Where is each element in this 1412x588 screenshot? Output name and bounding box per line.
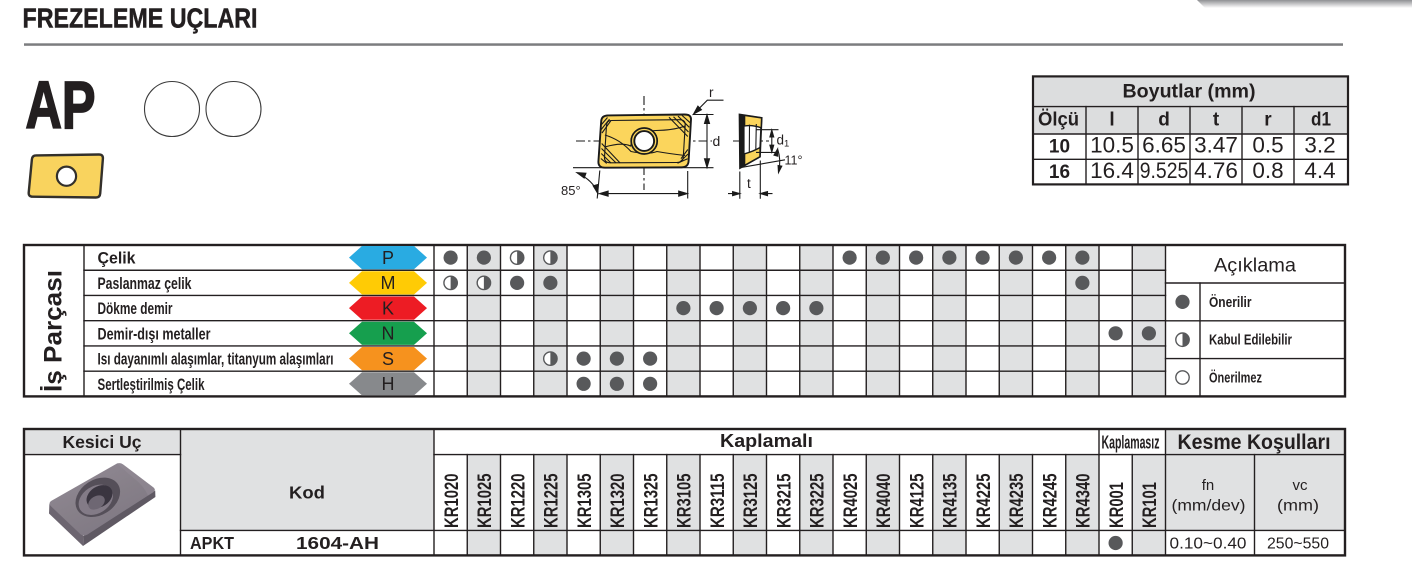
svg-text:S: S bbox=[382, 349, 394, 369]
svg-text:0.8: 0.8 bbox=[1252, 158, 1283, 183]
svg-text:KR4225: KR4225 bbox=[973, 473, 995, 528]
svg-text:N: N bbox=[382, 324, 395, 344]
svg-text:3.2: 3.2 bbox=[1304, 133, 1335, 158]
svg-text:KR1220: KR1220 bbox=[507, 473, 529, 528]
svg-text:d: d bbox=[1158, 110, 1170, 131]
svg-text:r: r bbox=[1264, 110, 1272, 131]
svg-text:KR3225: KR3225 bbox=[807, 473, 829, 528]
svg-text:K: K bbox=[382, 298, 394, 318]
svg-text:Kesici Uç: Kesici Uç bbox=[63, 432, 142, 452]
svg-text:(mm/dev): (mm/dev) bbox=[1172, 498, 1246, 515]
svg-text:KR4235: KR4235 bbox=[1006, 473, 1028, 528]
svg-text:KR4125: KR4125 bbox=[906, 473, 928, 528]
svg-text:Paslanmaz çelik: Paslanmaz çelik bbox=[98, 275, 193, 293]
svg-text:Çelik: Çelik bbox=[98, 250, 137, 268]
svg-text:M: M bbox=[381, 273, 396, 293]
svg-text:3.47: 3.47 bbox=[1194, 133, 1238, 158]
svg-text:İş Parçası: İş Parçası bbox=[40, 270, 68, 392]
svg-text:Kaplamalı: Kaplamalı bbox=[720, 431, 813, 451]
svg-text:85°: 85° bbox=[561, 183, 581, 198]
svg-text:l: l bbox=[1109, 110, 1114, 131]
svg-text:KR3105: KR3105 bbox=[674, 473, 696, 528]
svg-text:KR4245: KR4245 bbox=[1039, 473, 1061, 528]
svg-text:fn: fn bbox=[1202, 477, 1215, 494]
svg-text:KR4025: KR4025 bbox=[840, 473, 862, 528]
svg-text:d1: d1 bbox=[777, 133, 790, 150]
svg-text:1604-AH: 1604-AH bbox=[296, 533, 379, 553]
svg-text:KR3125: KR3125 bbox=[740, 473, 762, 528]
svg-text:11°: 11° bbox=[785, 154, 803, 168]
svg-text:KR001: KR001 bbox=[1106, 482, 1128, 528]
svg-text:16.4: 16.4 bbox=[1090, 158, 1134, 183]
svg-text:KR4135: KR4135 bbox=[940, 473, 962, 528]
svg-text:APKT: APKT bbox=[190, 533, 234, 553]
svg-text:Kod: Kod bbox=[289, 483, 325, 503]
svg-text:Önerilir: Önerilir bbox=[1209, 294, 1252, 311]
svg-text:KR101: KR101 bbox=[1139, 482, 1161, 528]
svg-text:Kesme Koşulları: Kesme Koşulları bbox=[1178, 431, 1331, 454]
svg-text:10.5: 10.5 bbox=[1090, 133, 1134, 158]
svg-text:0.10~0.40: 0.10~0.40 bbox=[1170, 536, 1247, 553]
svg-text:KR4040: KR4040 bbox=[873, 473, 895, 528]
svg-text:P: P bbox=[382, 248, 394, 268]
svg-text:r: r bbox=[709, 85, 714, 100]
svg-text:Önerilmez: Önerilmez bbox=[1209, 370, 1262, 387]
svg-text:t: t bbox=[747, 176, 751, 191]
svg-text:Sertleştirilmiş Çelik: Sertleştirilmiş Çelik bbox=[98, 376, 206, 394]
svg-text:KR3115: KR3115 bbox=[707, 473, 729, 528]
svg-text:Demir-dışı metaller: Demir-dışı metaller bbox=[98, 325, 211, 343]
svg-text:6.65: 6.65 bbox=[1142, 133, 1186, 158]
svg-text:16: 16 bbox=[1049, 162, 1070, 183]
svg-text:250~550: 250~550 bbox=[1267, 536, 1329, 553]
svg-text:FREZELEME UÇLARI: FREZELEME UÇLARI bbox=[23, 2, 258, 33]
svg-text:0.5: 0.5 bbox=[1252, 133, 1283, 158]
svg-text:KR1025: KR1025 bbox=[474, 473, 496, 528]
svg-text:d: d bbox=[713, 133, 721, 149]
svg-text:Açıklama: Açıklama bbox=[1214, 256, 1296, 277]
svg-text:Ölçü: Ölçü bbox=[1038, 110, 1079, 131]
svg-text:vc: vc bbox=[1293, 477, 1309, 494]
svg-text:Isı dayanımlı alaşımlar, titan: Isı dayanımlı alaşımlar, titanyum alaşım… bbox=[98, 351, 334, 369]
svg-text:d1: d1 bbox=[1311, 110, 1331, 131]
svg-text:Kabul Edilebilir: Kabul Edilebilir bbox=[1209, 333, 1292, 349]
svg-text:AP: AP bbox=[26, 68, 96, 143]
svg-text:4.4: 4.4 bbox=[1304, 158, 1335, 183]
svg-text:KR1225: KR1225 bbox=[541, 473, 563, 528]
svg-text:H: H bbox=[382, 374, 395, 394]
svg-text:4.76: 4.76 bbox=[1194, 158, 1238, 183]
svg-text:(mm): (mm) bbox=[1277, 498, 1319, 515]
svg-text:Kaplamasız: Kaplamasız bbox=[1102, 432, 1160, 452]
svg-text:Dökme demir: Dökme demir bbox=[98, 300, 173, 318]
svg-text:KR3215: KR3215 bbox=[773, 473, 795, 528]
svg-text:KR1305: KR1305 bbox=[574, 473, 596, 528]
svg-text:Boyutlar (mm): Boyutlar (mm) bbox=[1123, 81, 1256, 103]
svg-text:10: 10 bbox=[1049, 137, 1070, 158]
svg-text:KR1320: KR1320 bbox=[607, 473, 629, 528]
svg-text:t: t bbox=[1213, 110, 1220, 131]
svg-text:9.525: 9.525 bbox=[1140, 158, 1189, 183]
svg-text:KR4340: KR4340 bbox=[1073, 473, 1095, 528]
svg-text:KR1325: KR1325 bbox=[640, 473, 662, 528]
svg-text:KR1020: KR1020 bbox=[441, 473, 463, 528]
